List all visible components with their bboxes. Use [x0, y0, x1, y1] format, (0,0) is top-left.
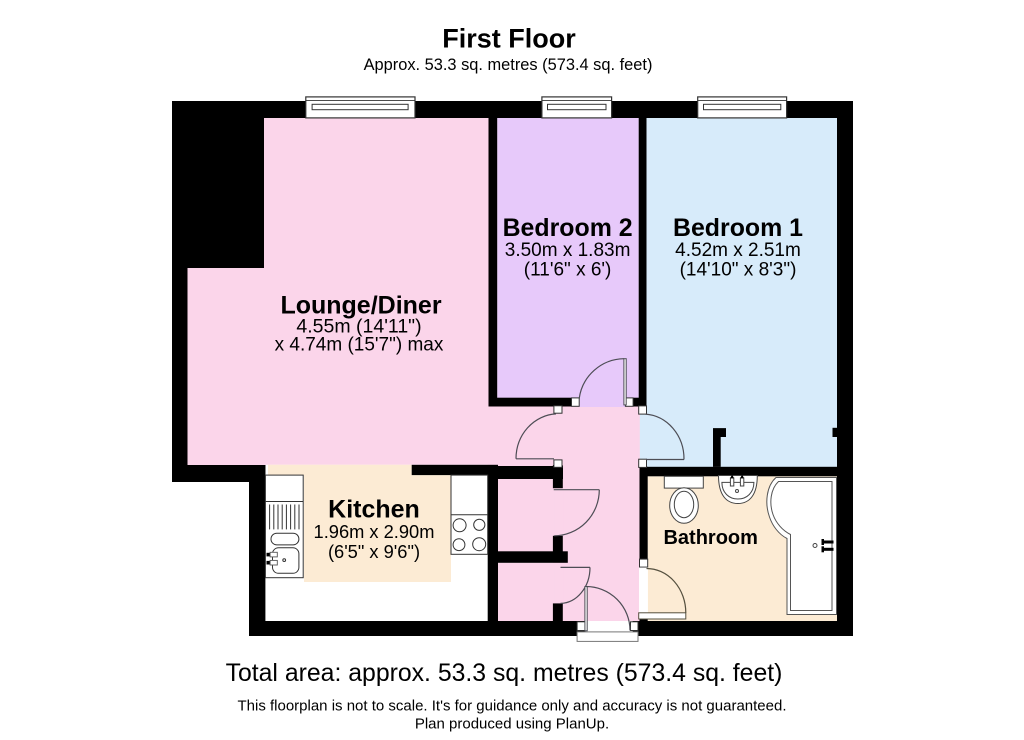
svg-text:x 4.74m (15'7") max: x 4.74m (15'7") max	[275, 334, 444, 355]
svg-text:Bedroom 1: Bedroom 1	[673, 214, 803, 242]
svg-text:First Floor: First Floor	[442, 24, 576, 54]
svg-text:Approx. 53.3 sq. metres (573.4: Approx. 53.3 sq. metres (573.4 sq. feet)	[364, 56, 653, 74]
svg-text:Plan produced using PlanUp.: Plan produced using PlanUp.	[415, 716, 609, 733]
svg-text:This floorplan is not to scale: This floorplan is not to scale. It's for…	[237, 698, 786, 715]
svg-text:4.52m x 2.51m: 4.52m x 2.51m	[675, 240, 801, 261]
svg-text:(6'5" x 9'6"): (6'5" x 9'6")	[328, 541, 420, 562]
svg-text:Bathroom: Bathroom	[663, 527, 757, 549]
svg-text:(11'6" x 6'): (11'6" x 6')	[524, 260, 612, 281]
svg-text:(14'10" x 8'3"): (14'10" x 8'3")	[680, 260, 797, 281]
svg-text:1.96m x 2.90m: 1.96m x 2.90m	[314, 521, 435, 542]
svg-text:Total area: approx. 53.3 sq. m: Total area: approx. 53.3 sq. metres (573…	[226, 660, 783, 687]
svg-text:3.50m x 1.83m: 3.50m x 1.83m	[505, 240, 631, 261]
svg-text:Bedroom 2: Bedroom 2	[503, 214, 633, 242]
svg-text:Kitchen: Kitchen	[328, 496, 420, 524]
